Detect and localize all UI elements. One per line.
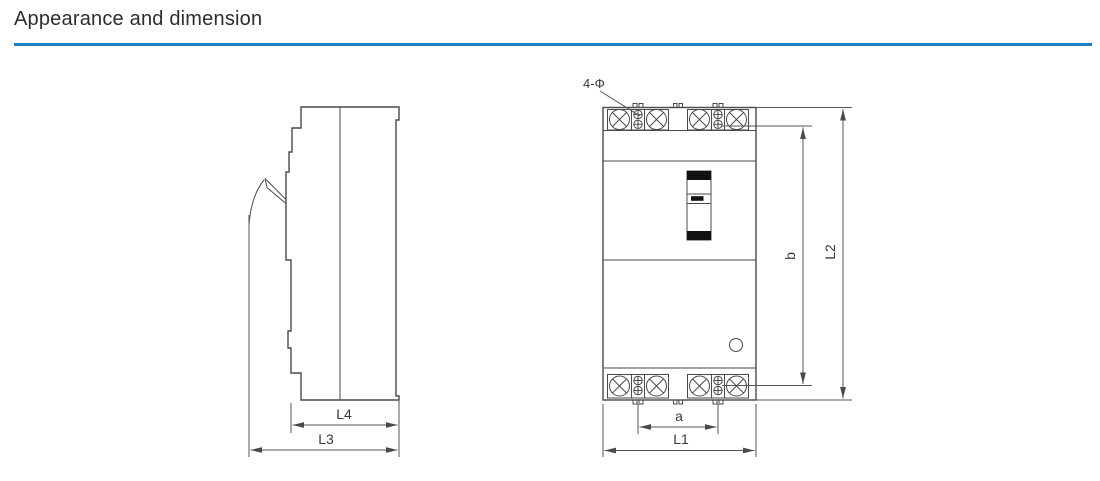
side-view (249, 107, 399, 400)
l4-label: L4 (336, 406, 352, 422)
mounting-screw-icons-top (634, 110, 722, 128)
toggle-handle-bar (691, 196, 704, 201)
appearance-dimension-page: Appearance and dimension (0, 0, 1100, 481)
l3-label: L3 (318, 431, 334, 447)
holes-label: 4-Φ (583, 76, 605, 91)
side-view-handle (249, 179, 287, 226)
b-label: b (782, 252, 798, 260)
l2-label: L2 (822, 244, 838, 260)
test-button (730, 339, 743, 352)
side-view-body-outline (286, 107, 399, 400)
dimension-drawing: L4 L3 (0, 0, 1100, 481)
front-view: 4-Φ (583, 76, 756, 404)
toggle-switch (687, 171, 711, 240)
l1-label: L1 (673, 431, 689, 447)
front-view-body (603, 108, 756, 401)
handle-travel-arc (249, 180, 264, 225)
side-view-dimensions: L4 L3 (249, 215, 399, 457)
mounting-screw-icons-bottom (634, 376, 722, 394)
a-label: a (675, 408, 683, 424)
front-view-dimensions: a L1 b L2 (603, 108, 852, 458)
